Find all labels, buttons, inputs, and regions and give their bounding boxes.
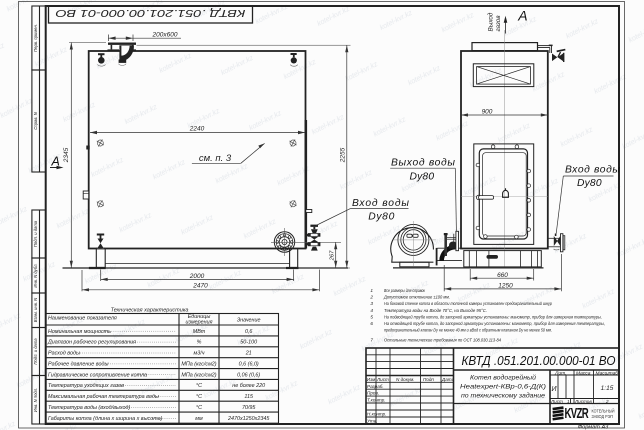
svg-text:2345: 2345 bbox=[63, 147, 70, 163]
svg-text:Dy80: Dy80 bbox=[368, 211, 394, 222]
svg-text:Справ. N: Справ. N bbox=[33, 111, 38, 129]
svg-text:2470: 2470 bbox=[192, 283, 208, 290]
svg-text:3: 3 bbox=[370, 301, 373, 306]
svg-text:2: 2 bbox=[605, 399, 609, 404]
svg-text:Подп. и дата: Подп. и дата bbox=[33, 338, 38, 365]
svg-text:Heatexpert-КВр-0,6-Д(К): Heatexpert-КВр-0,6-Д(К) bbox=[460, 384, 546, 391]
svg-text:70/95: 70/95 bbox=[242, 405, 256, 411]
svg-text:Габариты котла (длина х ширина: Габариты котла (длина х ширина х высота) bbox=[48, 416, 163, 422]
svg-text:Dy80: Dy80 bbox=[410, 172, 435, 183]
svg-text:Лист: Лист bbox=[376, 377, 389, 382]
svg-text:предохранительный клапан Dy н: предохранительный клапан Dy не менее 40 … bbox=[384, 327, 552, 333]
svg-text:Вход воды: Вход воды bbox=[352, 198, 409, 209]
svg-text:KVZR: KVZR bbox=[565, 406, 590, 422]
svg-text:Изм: Изм bbox=[367, 377, 376, 382]
svg-text:0,6 (6,0): 0,6 (6,0) bbox=[239, 362, 259, 368]
svg-text:Dy80: Dy80 bbox=[577, 178, 602, 189]
svg-text:2255: 2255 bbox=[339, 147, 346, 163]
svg-text:Остальные технические требован: Остальные технические требования по ОСТ … bbox=[384, 338, 501, 343]
svg-text:На подводящей трубе котла, до: На подводящей трубе котла, до запорной а… bbox=[384, 313, 602, 319]
svg-text:см. п. 3: см. п. 3 bbox=[199, 153, 232, 164]
svg-text:МПа (кгс/см2): МПа (кгс/см2) bbox=[181, 372, 216, 378]
svg-text:Расход воды: Расход воды bbox=[48, 351, 80, 357]
svg-text:1250: 1250 bbox=[498, 283, 513, 290]
svg-text:Масса: Масса bbox=[576, 370, 591, 376]
svg-text:Техническая характеристика: Техническая характеристика bbox=[111, 308, 189, 314]
svg-text:Формат А3: Формат А3 bbox=[578, 425, 609, 430]
svg-text:115: 115 bbox=[244, 394, 254, 400]
svg-text:Температура воды на Входе 70°: Температура воды на Входе 70°С, на Выход… bbox=[384, 308, 487, 313]
svg-text:МПа (кгс/см2): МПа (кгс/см2) bbox=[181, 362, 216, 368]
svg-text:2470х1250х2345: 2470х1250х2345 bbox=[227, 416, 270, 422]
svg-text:Подп: Подп bbox=[423, 377, 434, 382]
svg-text:газов: газов bbox=[495, 15, 502, 32]
svg-text:На боковой стенке котла в обла: На боковой стенке котла в области топочн… bbox=[384, 300, 552, 306]
svg-text:Н.контр.: Н.контр. bbox=[367, 412, 386, 417]
svg-text:Пров.: Пров. bbox=[367, 391, 379, 396]
svg-text:Значение: Значение bbox=[237, 318, 261, 324]
svg-text:4: 4 bbox=[370, 308, 373, 313]
svg-text:°С: °С bbox=[196, 405, 202, 411]
svg-text:Масштаб: Масштаб bbox=[596, 370, 619, 376]
svg-text:900: 900 bbox=[482, 109, 493, 116]
svg-text:0,6: 0,6 bbox=[245, 329, 253, 335]
svg-text:°С: °С bbox=[196, 394, 202, 400]
svg-text:Выход воды: Выход воды bbox=[391, 158, 455, 169]
svg-text:Гидравлическое сопротивление к: Гидравлическое сопротивление котла bbox=[48, 372, 147, 378]
svg-text:Дата: Дата bbox=[441, 377, 455, 382]
svg-text:На отводящей трубе котла, до з: На отводящей трубе котла, до запорной ар… bbox=[384, 320, 605, 326]
svg-text:Котел водогрейный: Котел водогрейный bbox=[470, 374, 536, 382]
svg-text:Лист: Лист bbox=[550, 399, 563, 404]
svg-text:А: А bbox=[517, 7, 527, 23]
svg-text:КВТД .051.201.00.000-01 ВО: КВТД .051.201.00.000-01 ВО bbox=[56, 7, 246, 19]
svg-text:Максимальная рабочая температу: Максимальная рабочая температура воды bbox=[48, 394, 159, 400]
svg-text:Рабочее давление воды: Рабочее давление воды bbox=[48, 362, 108, 368]
svg-text:м3/ч: м3/ч bbox=[194, 351, 205, 357]
svg-text:7: 7 bbox=[370, 338, 373, 343]
svg-text:660: 660 bbox=[497, 272, 508, 279]
svg-text:0,06 (0,6): 0,06 (0,6) bbox=[237, 372, 260, 378]
svg-text:50-100: 50-100 bbox=[240, 340, 257, 346]
svg-text:Инв. N подл.: Инв. N подл. bbox=[33, 388, 38, 412]
svg-text:КОТЕЛЬНЫЙ: КОТЕЛЬНЫЙ bbox=[592, 409, 615, 414]
svg-text:°С: °С bbox=[196, 383, 202, 389]
svg-text:Инв. N дубл.: Инв. N дубл. bbox=[33, 263, 38, 287]
svg-text:КВТД .051.201.00.000-01 ВО: КВТД .051.201.00.000-01 ВО bbox=[462, 354, 616, 368]
svg-text:Допустимое отклонение ±100 мм: Допустимое отклонение ±100 мм. bbox=[383, 295, 450, 300]
svg-text:5: 5 bbox=[370, 314, 373, 319]
svg-text:Наименование показателя: Наименование показателя bbox=[48, 316, 117, 322]
svg-text:Т.контр.: Т.контр. bbox=[367, 398, 386, 403]
svg-text:267: 267 bbox=[330, 250, 336, 261]
svg-text:1:15: 1:15 bbox=[601, 385, 614, 392]
svg-text:МВт: МВт bbox=[193, 329, 206, 335]
svg-text:Лит.: Лит. bbox=[554, 370, 566, 376]
svg-text:%: % bbox=[197, 340, 202, 346]
svg-text:2: 2 bbox=[369, 295, 373, 300]
svg-text:2000: 2000 bbox=[189, 273, 205, 280]
svg-text:N докум.: N докум. bbox=[396, 377, 415, 382]
svg-text:Вход воды: Вход воды bbox=[565, 165, 620, 176]
svg-text:200х600: 200х600 bbox=[152, 32, 178, 39]
svg-text:21: 21 bbox=[245, 351, 252, 357]
svg-text:Диапазон рабочего регулировани: Диапазон рабочего регулирования bbox=[47, 340, 136, 346]
svg-text:Перв. примен.: Перв. примен. bbox=[33, 24, 38, 52]
svg-text:2240: 2240 bbox=[189, 126, 205, 133]
svg-text:1: 1 bbox=[370, 288, 373, 293]
svg-text:Утв.: Утв. bbox=[367, 419, 377, 424]
svg-text:Выход: Выход bbox=[487, 12, 495, 31]
svg-text:измерения: измерения bbox=[186, 320, 213, 326]
svg-text:Температура воды (вход/выход): Температура воды (вход/выход) bbox=[48, 405, 131, 411]
svg-text:ЗАВОД РЭП: ЗАВОД РЭП bbox=[592, 414, 614, 419]
svg-text:мм: мм bbox=[195, 416, 203, 422]
svg-text:Номинальная мощность: Номинальная мощность bbox=[48, 329, 111, 335]
svg-text:по техническому задание: по техническому задание bbox=[461, 392, 545, 400]
svg-text:1: 1 bbox=[567, 399, 570, 404]
svg-text:Температура уходящих газов: Температура уходящих газов bbox=[48, 383, 124, 389]
svg-text:Все размеры для справок: Все размеры для справок bbox=[384, 288, 426, 293]
svg-text:Подп. и дата: Подп. и дата bbox=[33, 220, 38, 247]
svg-text:не более 220: не более 220 bbox=[232, 383, 265, 389]
svg-text:6: 6 bbox=[370, 321, 373, 326]
svg-text:Разраб.: Разраб. bbox=[367, 384, 384, 389]
svg-text:Листов: Листов bbox=[574, 399, 592, 404]
svg-text:Взам. инв. N: Взам. инв. N bbox=[33, 297, 38, 322]
